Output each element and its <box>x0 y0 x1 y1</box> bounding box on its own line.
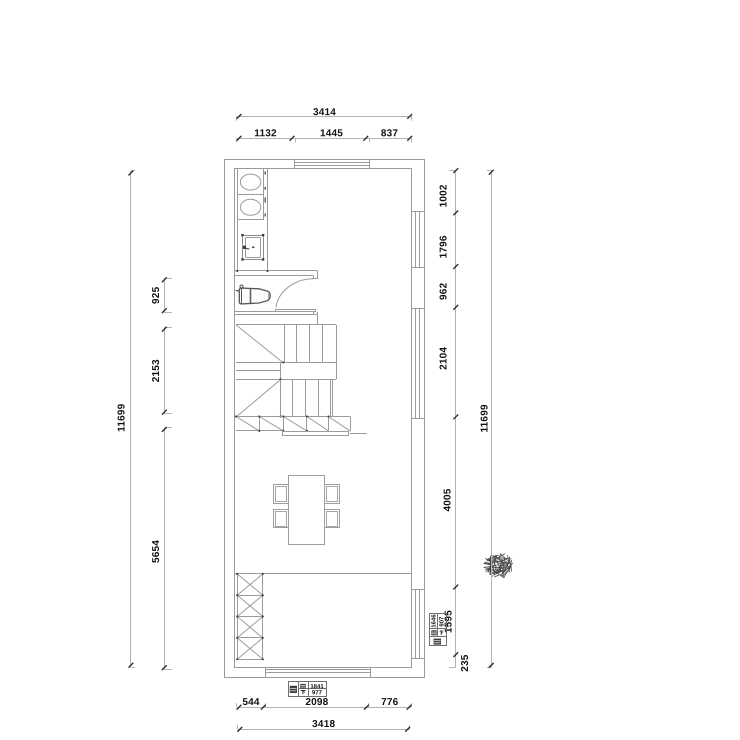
svg-text:4005: 4005 <box>443 488 454 511</box>
svg-text:235: 235 <box>460 654 471 672</box>
svg-text:837: 837 <box>381 128 399 139</box>
svg-text:2098: 2098 <box>305 697 328 708</box>
svg-text:907: 907 <box>439 616 446 627</box>
svg-text:3414: 3414 <box>313 107 336 118</box>
svg-text:5654: 5654 <box>151 540 162 563</box>
svg-text:1002: 1002 <box>439 184 450 207</box>
svg-text:2104: 2104 <box>439 347 450 370</box>
svg-text:11699: 11699 <box>480 404 491 432</box>
svg-text:977: 977 <box>312 689 323 696</box>
svg-text:1445: 1445 <box>320 128 343 139</box>
svg-text:925: 925 <box>151 286 162 304</box>
svg-text:1646: 1646 <box>431 614 438 628</box>
svg-text:776: 776 <box>381 697 399 708</box>
svg-text:2153: 2153 <box>151 359 162 382</box>
svg-text:3418: 3418 <box>312 719 335 730</box>
svg-text:544: 544 <box>242 697 260 708</box>
svg-text:11699: 11699 <box>117 403 128 431</box>
svg-text:1132: 1132 <box>254 128 277 139</box>
svg-text:1841: 1841 <box>310 683 324 690</box>
svg-text:962: 962 <box>439 282 450 300</box>
svg-text:1796: 1796 <box>439 235 450 258</box>
